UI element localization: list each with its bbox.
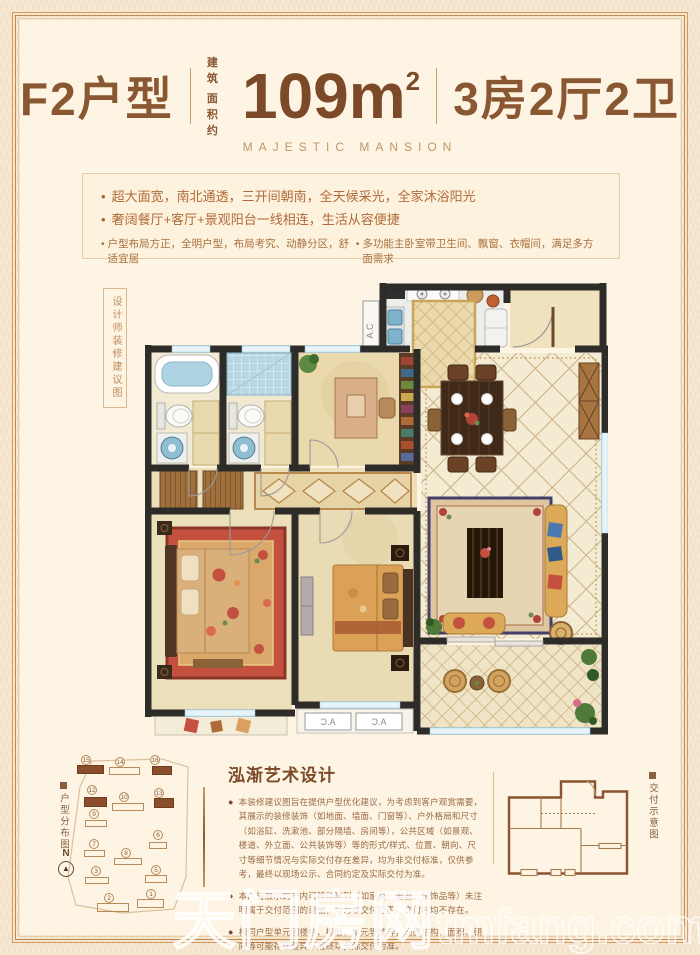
pillow-icon (181, 589, 199, 615)
building-number: 6 (153, 830, 163, 840)
delivery-plan (503, 766, 638, 901)
window-icon (430, 728, 590, 735)
building-footprint (112, 803, 144, 811)
pillow-icon (383, 573, 398, 593)
building-number: 2 (104, 893, 114, 903)
building-footprint (109, 767, 140, 775)
site-plan: 15141612101396783521 (62, 757, 194, 917)
sofa-icon (545, 505, 567, 617)
building-number: 7 (89, 839, 99, 849)
building-number: 14 (115, 757, 125, 767)
compass-icon: ▲ (58, 861, 74, 877)
nightstand-icon (157, 521, 172, 535)
master-bedroom (157, 521, 285, 679)
floor-plan: A.C A.C A.C (145, 283, 608, 738)
pillow-icon (210, 720, 223, 733)
square-bullet-icon (649, 772, 656, 779)
disclaimer-item: ●本广告展示的户内可移动陈列（如家具、电器、装饰品等）未注明属于交付范围的设施，… (228, 889, 484, 918)
sink-icon (388, 329, 402, 344)
building-footprint (152, 766, 172, 775)
ac-label: A.C (320, 717, 336, 727)
building-number: 9 (89, 809, 99, 819)
building-footprint (77, 765, 104, 774)
ac-label: A.C (365, 323, 375, 339)
compass-n-label: N (58, 848, 74, 859)
area-prefix: 建 筑 面积约 (207, 54, 232, 138)
content-area: F2户型 建 筑 面积约 109m2 3房2厅2卫 MAJESTIC MANSI… (20, 20, 680, 935)
building-footprint (84, 850, 105, 857)
building-number: 12 (87, 785, 97, 795)
rooms-label: 3房2厅2卫 (453, 63, 680, 129)
building-number: 16 (150, 755, 160, 765)
disclaimer-item: ●本装修建议图旨在提供户型优化建议，为考虑到客户观赏需要，其展示的装修装饰（如地… (228, 795, 484, 882)
window-icon (242, 346, 290, 353)
toilet-icon (238, 405, 264, 427)
pillow-icon (181, 555, 199, 581)
ac-closet: A.C (363, 301, 379, 347)
design-title: 泓渐艺术设计 (228, 761, 484, 786)
site-plan-outline (62, 757, 194, 917)
building-number: 3 (91, 866, 101, 876)
bottom-divider (203, 787, 205, 887)
building-footprint (114, 858, 142, 865)
window-icon (305, 346, 360, 353)
compass: N ▲ (58, 848, 74, 877)
chair-icon (444, 670, 466, 692)
disclaimer-item: ●相同户型单元因楼栋、楼层、单元等差异，局部结构、面积、朝向等可能存在差异，最终… (228, 925, 484, 954)
window-icon (185, 710, 255, 717)
subtitle: MAJESTIC MANSION (20, 140, 680, 154)
building-number: 1 (146, 889, 156, 899)
area-value: 109m2 (242, 64, 420, 128)
building-number: 8 (121, 848, 131, 858)
header-divider (190, 68, 191, 124)
pillow-icon (547, 522, 563, 538)
bathroom-second (227, 353, 291, 465)
building-number: 5 (151, 865, 161, 875)
chair-icon (488, 670, 510, 692)
window-icon (602, 433, 609, 533)
chair-icon (448, 365, 468, 380)
pillow-icon (547, 546, 563, 562)
pillow-icon (483, 617, 495, 629)
nightstand-icon (157, 665, 172, 679)
building-footprint (154, 798, 174, 808)
designer-note-label: 设计师装修建议图 (103, 288, 127, 408)
plant-icon (581, 649, 597, 665)
header: F2户型 建 筑 面积约 109m2 3房2厅2卫 (20, 54, 680, 138)
building-footprint (149, 842, 167, 849)
pillow-icon (547, 574, 562, 589)
sink-icon (388, 310, 402, 325)
chair-icon (428, 409, 441, 431)
feature-item: • 多功能主卧室带卫生间、飘窗、衣帽间，满足多方面需求 (356, 236, 601, 266)
pillow-icon (453, 617, 465, 629)
building-footprint (97, 903, 129, 912)
bay-window-seat (155, 715, 287, 735)
nightstand-icon (391, 655, 409, 671)
building-footprint (85, 877, 109, 884)
chair-icon (448, 457, 468, 472)
toilet-icon (166, 405, 192, 427)
disclaimer-block: 泓渐艺术设计 ●本装修建议图旨在提供户型优化建议，为考虑到客户观赏需要，其展示的… (228, 761, 484, 955)
wardrobe-icon (203, 471, 243, 509)
pot-icon (487, 295, 499, 307)
delivery-plan-label: 交付示意图 (645, 772, 659, 841)
building-number: 13 (154, 788, 164, 798)
bed-runner (335, 621, 401, 634)
window-icon (172, 346, 210, 353)
ac-platform: A.C A.C (297, 709, 413, 733)
bottom-divider-thin (493, 772, 494, 864)
building-footprint (84, 797, 107, 807)
loveseat-icon (443, 613, 505, 634)
building-number: 15 (81, 755, 91, 765)
nightstand-icon (391, 545, 409, 561)
building-number: 10 (119, 792, 129, 802)
header-divider (436, 68, 437, 124)
unit-type-label: F2户型 (20, 63, 174, 129)
coffee-table-icon (467, 528, 503, 598)
feature-item: •超大面宽，南北通透，三开间朝南，全天候采光，全家沐浴阳光 (101, 186, 601, 209)
chair-icon (503, 409, 516, 431)
pillow-icon (184, 718, 199, 733)
feature-item: •奢阔餐厅+客厅+景观阳台一线相连，生活从容便捷 (101, 209, 601, 232)
building-footprint (85, 820, 107, 827)
chair-icon (379, 398, 395, 418)
headboard (403, 569, 413, 647)
bathroom-master (155, 355, 219, 465)
building-footprint (137, 899, 164, 908)
bench-icon (193, 659, 243, 668)
living-room (426, 498, 572, 644)
features-box: •超大面宽，南北通透，三开间朝南，全天候采光，全家沐浴阳光 •奢阔餐厅+客厅+景… (82, 173, 620, 259)
feature-item-row: • 户型布局方正，全明户型，布局考究、动静分区，舒适宜居 • 多功能主卧室带卫生… (101, 236, 601, 266)
wardrobe-icon (160, 471, 197, 509)
chair-icon (476, 365, 496, 380)
building-footprint (145, 875, 167, 883)
chair-icon (476, 457, 496, 472)
poster: F2户型 建 筑 面积约 109m2 3房2厅2卫 MAJESTIC MANSI… (0, 0, 700, 955)
pillow-icon (383, 599, 398, 619)
ac-label: A.C (371, 717, 387, 727)
feature-item: • 户型布局方正，全明户型，布局考究、动静分区，舒适宜居 (101, 236, 356, 266)
window-icon (320, 702, 400, 709)
headboard (165, 545, 177, 657)
